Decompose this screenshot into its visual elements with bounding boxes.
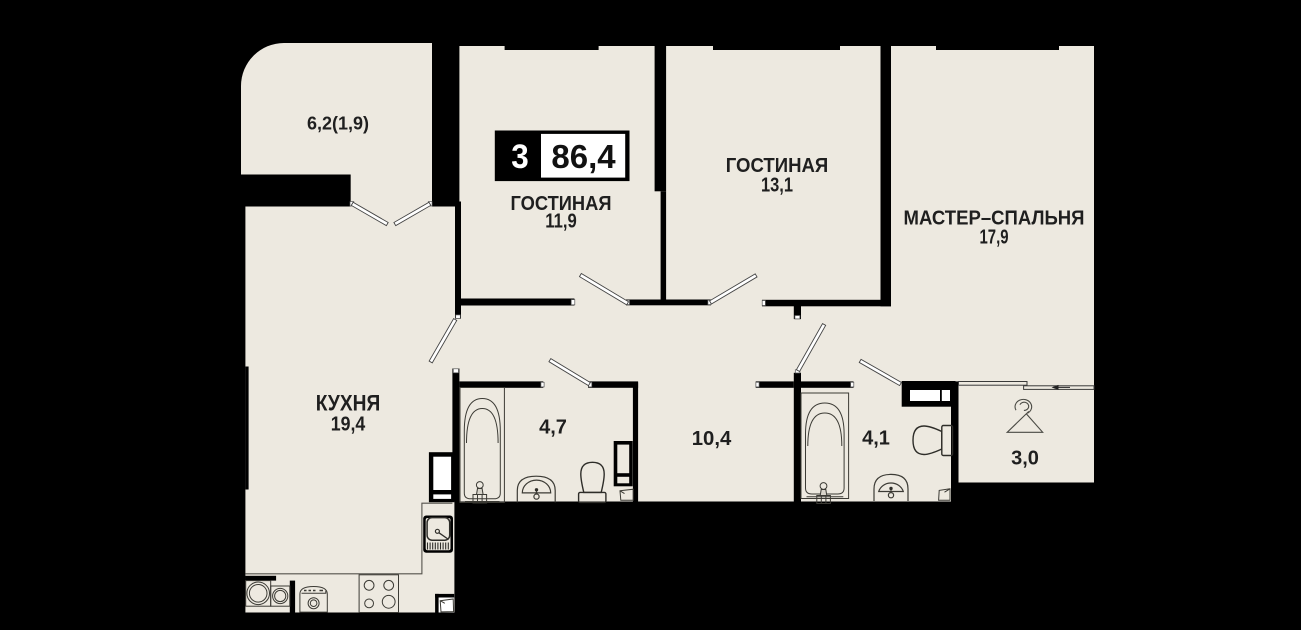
svg-text:6,2(1,9): 6,2(1,9) (307, 114, 369, 134)
svg-text:17,9: 17,9 (980, 227, 1009, 249)
svg-text:86,4: 86,4 (551, 138, 616, 175)
svg-text:3: 3 (511, 138, 529, 176)
svg-text:19,4: 19,4 (331, 414, 366, 436)
svg-text:4,7: 4,7 (539, 417, 567, 439)
svg-text:13,1: 13,1 (761, 175, 793, 197)
svg-text:10,4: 10,4 (692, 428, 732, 450)
svg-text:КУХНЯ: КУХНЯ (316, 391, 381, 416)
svg-text:11,9: 11,9 (545, 211, 577, 233)
svg-text:4,1: 4,1 (862, 428, 890, 450)
svg-text:3,0: 3,0 (1011, 448, 1039, 470)
